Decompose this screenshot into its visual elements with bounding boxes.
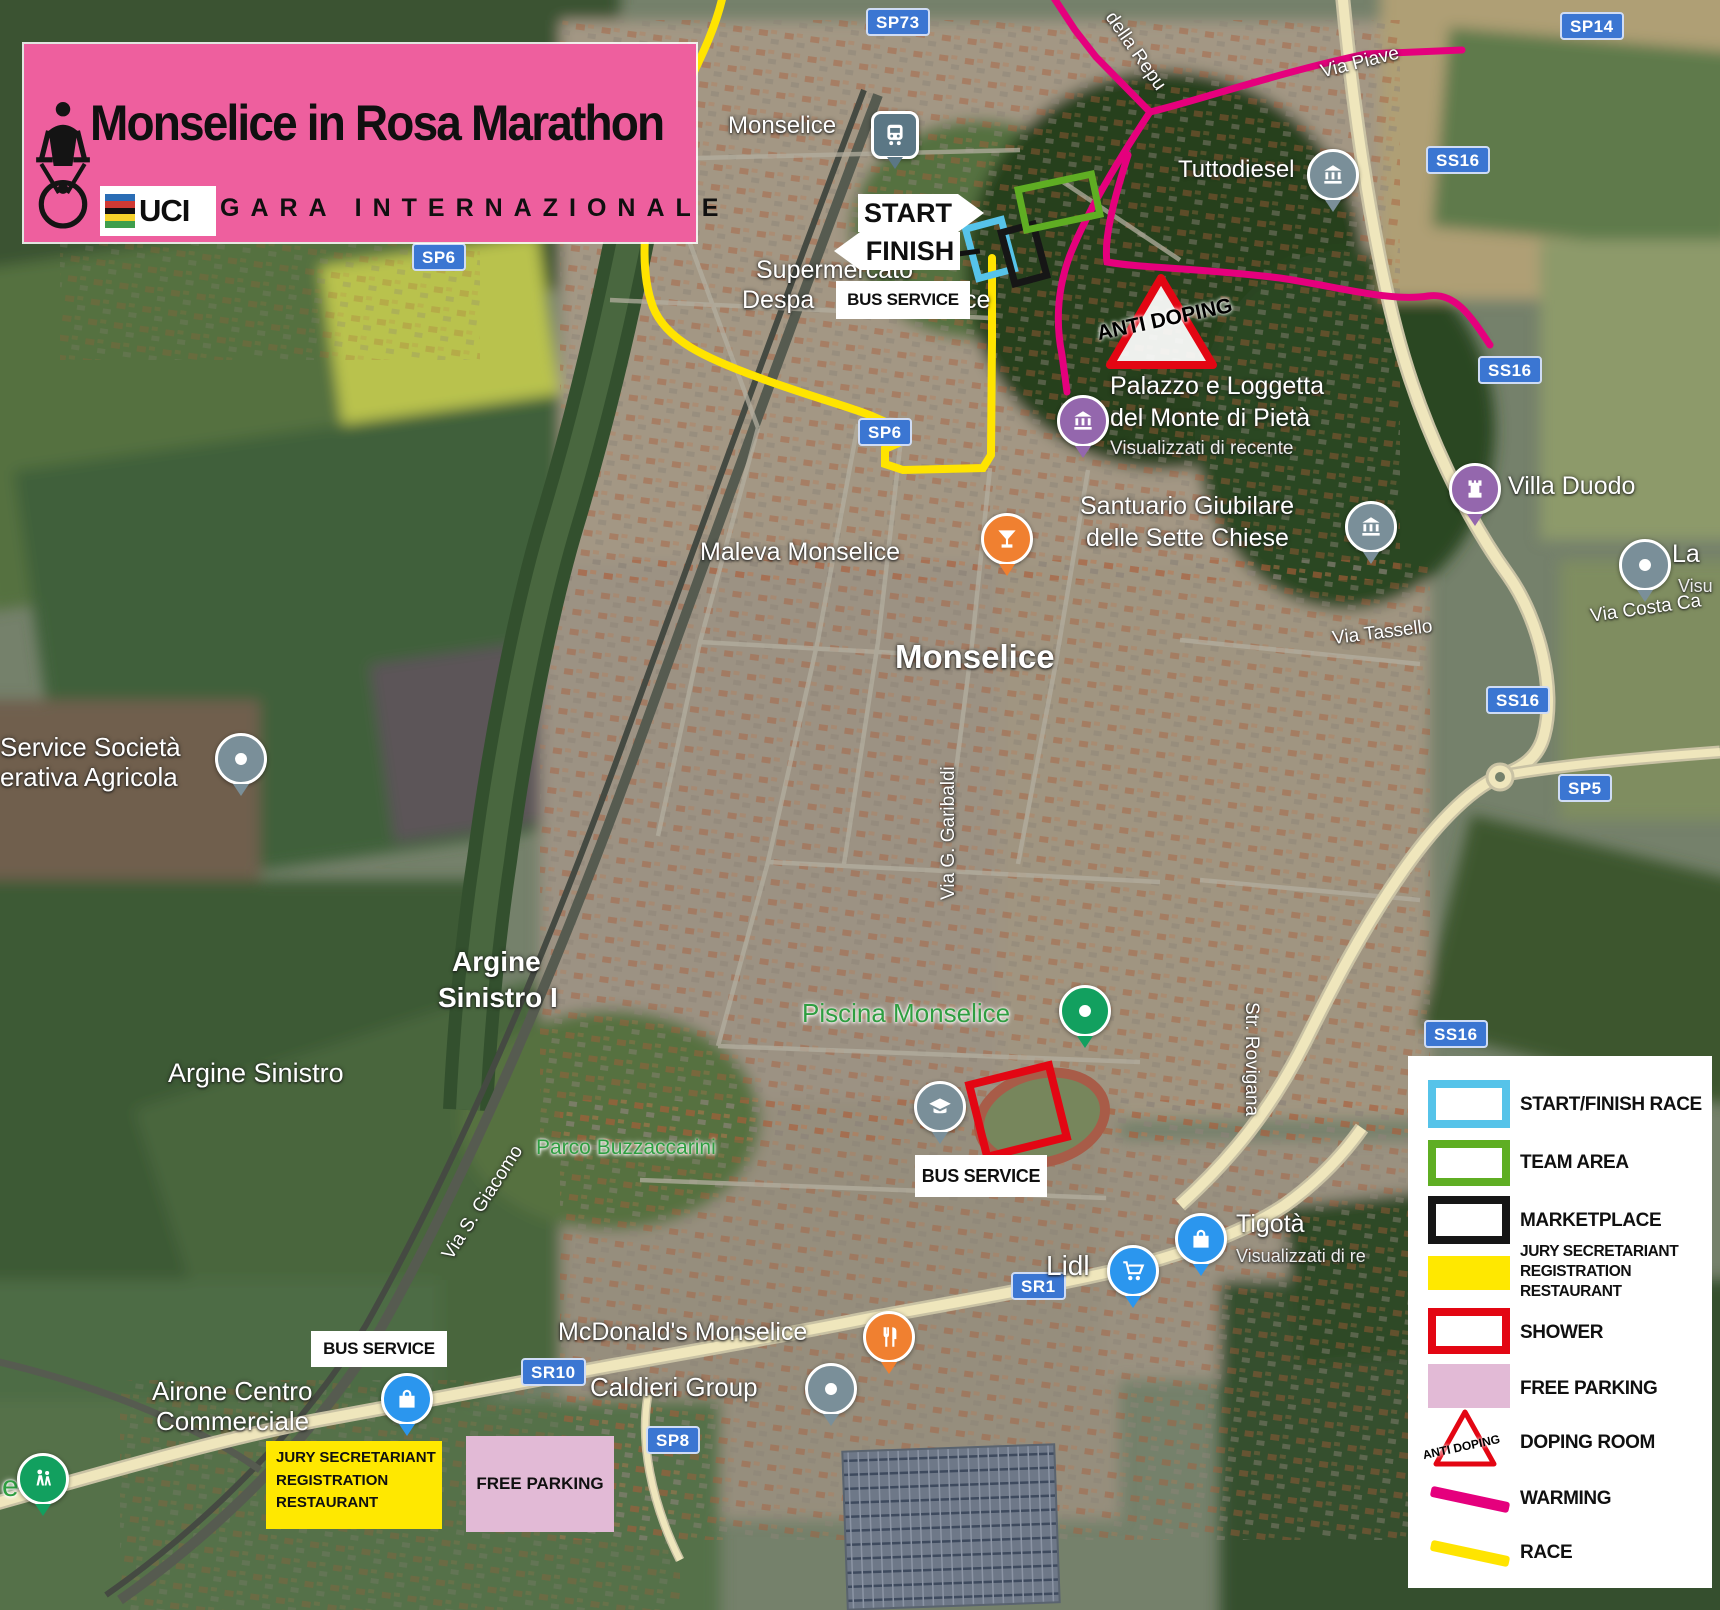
legend-panel: START/FINISH RACE TEAM AREA MARKETPLACE …: [1408, 1056, 1712, 1588]
palazzo-label-2: del Monte di Pietà: [1110, 404, 1310, 433]
piscina-label: Piscina Monselice: [802, 998, 1010, 1029]
mcdonalds-label: McDonald's Monselice: [558, 1318, 807, 1347]
legend-label-doping-room: DOPING ROOM: [1520, 1432, 1655, 1454]
bus-service-label-airone: BUS SERVICE: [311, 1331, 447, 1367]
free-parking-label: FREE PARKING: [476, 1474, 603, 1494]
jury-line-1: JURY SECRETARIANT: [276, 1447, 442, 1470]
tigota-sub-label: Visualizzati di re: [1236, 1246, 1366, 1267]
building-icon: [1320, 162, 1346, 188]
service-label-1: Service Società: [0, 732, 181, 763]
piscina-pin[interactable]: [1059, 985, 1111, 1037]
pin-tail: [233, 784, 249, 796]
argine-sinistro-label: Argine Sinistro: [168, 1058, 344, 1089]
legend-swatch-marketplace: [1428, 1196, 1510, 1244]
road-badge-sp6-a: SP6: [412, 243, 466, 271]
bus-service-label-stadium: BUS SERVICE: [915, 1155, 1047, 1197]
pin-tail: [1075, 446, 1091, 458]
solar-farm: [842, 1444, 1059, 1609]
pin-tail: [1193, 1264, 1209, 1276]
pin-tail: [1077, 1036, 1093, 1048]
legend-label-jury-3: RESTAURANT: [1520, 1282, 1678, 1302]
tuttodiesel-pin[interactable]: [1307, 149, 1359, 201]
argine-sinistro-i-label-2: Sinistro I: [438, 982, 558, 1014]
cocktail-icon: [994, 526, 1020, 552]
la-label: La: [1672, 540, 1700, 569]
event-title: Monselice in Rosa Marathon: [90, 94, 663, 152]
road-badge-ss16-d: SS16: [1424, 1020, 1488, 1048]
dot-icon: [818, 1376, 844, 1402]
palazzo-label-3: Visualizzati di recente: [1110, 438, 1293, 460]
legend-race-line-icon: [1430, 1540, 1511, 1567]
hikers-icon: [30, 1466, 56, 1492]
pin-tail: [823, 1414, 839, 1426]
road-badge-sr10: SR10: [521, 1358, 586, 1386]
road-badge-ss16-a: SS16: [1426, 146, 1490, 174]
legend-swatch-shower: [1428, 1308, 1510, 1354]
road-badge-sp8: SP8: [646, 1426, 700, 1454]
pin-tail: [1125, 1296, 1141, 1308]
villa-duodo-label: Villa Duodo: [1508, 472, 1635, 501]
legend-swatch-start-finish: [1428, 1080, 1510, 1128]
dining-icon: [876, 1324, 902, 1350]
road-badge-ss16-c: SS16: [1486, 686, 1550, 714]
legend-label-start-finish: START/FINISH RACE: [1520, 1094, 1702, 1116]
legend-label-team-area: TEAM AREA: [1520, 1152, 1629, 1174]
train-icon: [882, 122, 908, 148]
legend-swatch-team-area: [1428, 1140, 1510, 1186]
finish-label: FINISH: [860, 232, 960, 270]
pin-tail: [887, 157, 903, 169]
pin-tail: [1637, 590, 1653, 602]
station-label: Monselice: [728, 112, 836, 140]
legend-label-warming: WARMING: [1520, 1488, 1611, 1510]
finish-arrow: FINISH: [834, 232, 960, 270]
station-pin[interactable]: [871, 111, 919, 159]
tuttodiesel-label: Tuttodiesel: [1178, 156, 1295, 184]
service-label-2: erativa Agricola: [0, 762, 178, 793]
pin-tail: [1363, 552, 1379, 564]
pin-tail: [881, 1362, 897, 1374]
santuario-pin[interactable]: [1345, 501, 1397, 553]
mcdonalds-pin[interactable]: [863, 1311, 915, 1363]
cyclist-icon: [32, 94, 94, 236]
dot-icon: [228, 746, 254, 772]
start-label: START: [858, 194, 958, 232]
uci-logo: UCI: [100, 186, 216, 236]
airone-pin[interactable]: [381, 1373, 433, 1425]
pin-tail: [399, 1424, 415, 1436]
legend-label-race: RACE: [1520, 1542, 1572, 1564]
airone-label-2: Commerciale: [156, 1406, 309, 1437]
street-garibaldi: Via G. Garibaldi: [938, 766, 960, 900]
graduation-cap-icon: [927, 1094, 953, 1120]
free-parking-box: FREE PARKING: [466, 1436, 614, 1532]
jury-line-2: REGISTRATION: [276, 1470, 442, 1493]
jury-line-3: RESTAURANT: [276, 1492, 442, 1515]
jury-secretariat-box: JURY SECRETARIANT REGISTRATION RESTAURAN…: [266, 1441, 442, 1529]
lidl-pin[interactable]: [1107, 1245, 1159, 1297]
villa-duodo-pin[interactable]: [1449, 463, 1501, 515]
castle-icon: [1462, 476, 1488, 502]
road-badge-ss16-b: SS16: [1478, 356, 1542, 384]
legend-swatch-jury: [1428, 1256, 1510, 1290]
legend-label-marketplace: MARKETPLACE: [1520, 1210, 1661, 1232]
legend-label-parking: FREE PARKING: [1520, 1378, 1657, 1400]
supermercato-label-2: Despa: [742, 286, 814, 315]
street-rovigana: Str. Rovigana: [1240, 1002, 1262, 1116]
park-trail-pin[interactable]: [17, 1453, 69, 1505]
uci-wordmark: UCI: [139, 193, 189, 229]
legend-swatch-parking: [1428, 1364, 1510, 1408]
legend-label-jury-2: REGISTRATION: [1520, 1262, 1678, 1282]
pin-tail: [1467, 514, 1483, 526]
legend-label-jury: JURY SECRETARIANT REGISTRATION RESTAURAN…: [1520, 1242, 1678, 1302]
race-map-poster: START FINISH BUS SERVICE BUS SERVICE BUS…: [0, 0, 1720, 1610]
maleva-pin[interactable]: [981, 513, 1033, 565]
palazzo-pin[interactable]: [1057, 395, 1109, 447]
dot-icon: [1632, 552, 1658, 578]
legend-label-jury-1: JURY SECRETARIANT: [1520, 1242, 1678, 1262]
parco-label: Parco Buzzaccarini: [536, 1136, 716, 1160]
city-label: Monselice: [895, 638, 1055, 676]
lidl-label: Lidl: [1046, 1250, 1090, 1282]
palazzo-label-1: Palazzo e Loggetta: [1110, 372, 1324, 401]
shopping-bag-icon: [394, 1386, 420, 1412]
start-arrow: START: [858, 194, 984, 232]
museum-icon: [1070, 408, 1096, 434]
church-icon: [1358, 514, 1384, 540]
legend-warming-line-icon: [1430, 1486, 1511, 1513]
cart-icon: [1120, 1258, 1146, 1284]
road-badge-sp14: SP14: [1560, 12, 1624, 40]
bus-service-label-start: BUS SERVICE: [836, 281, 970, 319]
maleva-label: Maleva Monselice: [700, 538, 900, 567]
road-badge-sp73: SP73: [866, 8, 930, 36]
pin-tail: [932, 1132, 948, 1144]
tigota-pin[interactable]: [1175, 1213, 1227, 1265]
santuario-label-1: Santuario Giubilare: [1080, 492, 1294, 521]
caldieri-pin[interactable]: [805, 1363, 857, 1415]
legend-label-shower: SHOWER: [1520, 1322, 1603, 1344]
tigota-label: Tigotà: [1236, 1210, 1305, 1239]
caldieri-label: Caldieri Group: [590, 1372, 758, 1403]
event-banner: Monselice in Rosa Marathon UCI GARA INTE…: [24, 44, 696, 242]
pin-tail: [1325, 200, 1341, 212]
la-sub-label: Visu: [1678, 576, 1713, 597]
argine-sinistro-i-label-1: Argine: [452, 946, 541, 978]
santuario-label-2: delle Sette Chiese: [1086, 524, 1289, 553]
event-subtitle: GARA INTERNAZIONALE: [220, 194, 729, 223]
shopping-bag-icon: [1188, 1226, 1214, 1252]
pin-tail: [999, 564, 1015, 576]
dot-icon: [1072, 998, 1098, 1024]
school-pin[interactable]: [914, 1081, 966, 1133]
la-pin[interactable]: [1619, 539, 1671, 591]
roundabout: [1487, 764, 1513, 790]
service-pin[interactable]: [215, 733, 267, 785]
uci-rainbow-stripes-icon: [105, 194, 135, 228]
airone-label-1: Airone Centro: [152, 1376, 312, 1407]
finish-arrowhead: [834, 232, 860, 270]
road-badge-sp5: SP5: [1558, 774, 1612, 802]
pin-tail: [35, 1504, 51, 1516]
start-arrowhead: [958, 194, 984, 232]
road-badge-sp6-b: SP6: [858, 418, 912, 446]
